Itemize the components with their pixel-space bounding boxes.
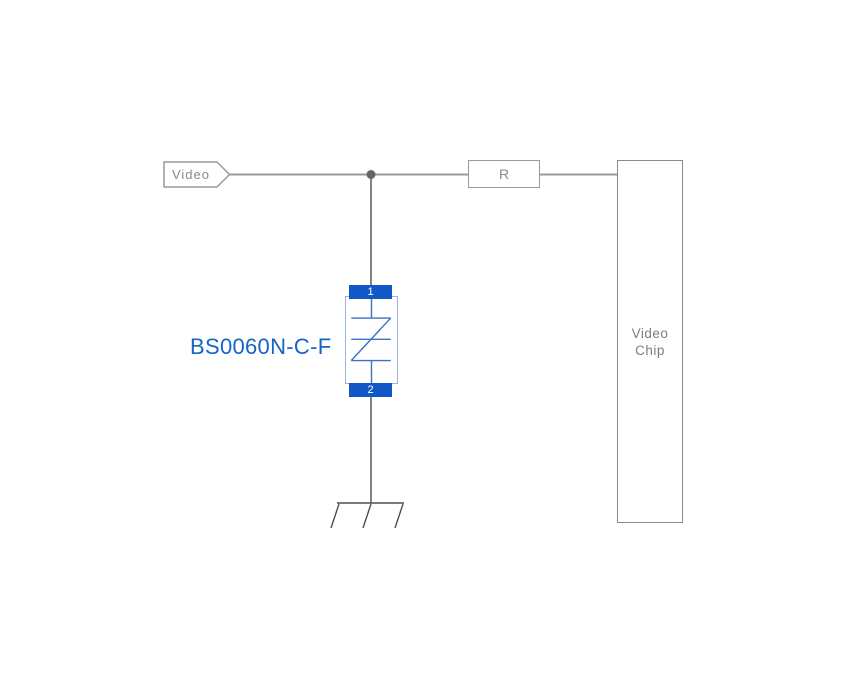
- tvs-pin1-pad: 1: [349, 285, 392, 299]
- tvs-pin2-pad: 2: [349, 383, 392, 397]
- ground-hatch-left: [331, 504, 339, 528]
- tvs-diode-body: [345, 296, 398, 384]
- junction-dot: [367, 170, 376, 179]
- tvs-symbol: [346, 297, 397, 383]
- chip-label-line2: Chip: [635, 342, 665, 359]
- video-chip-box: Video Chip: [617, 160, 683, 523]
- tvs-pin1-number: 1: [367, 287, 373, 298]
- tvs-pin2-number: 2: [367, 385, 373, 396]
- resistor-box: R: [468, 160, 540, 188]
- ground-symbol: [331, 503, 404, 528]
- schematic-canvas: Video R Video Chip 1 2 BS0060N-C-F: [0, 0, 846, 686]
- chip-label-line1: Video: [632, 325, 669, 342]
- tvs-part-number: BS0060N-C-F: [190, 334, 331, 360]
- video-net-label: Video: [164, 162, 218, 187]
- wire-layer: [0, 0, 846, 686]
- ground-hatch-middle: [363, 504, 371, 528]
- ground-hatch-right: [395, 504, 403, 528]
- resistor-label: R: [499, 166, 509, 182]
